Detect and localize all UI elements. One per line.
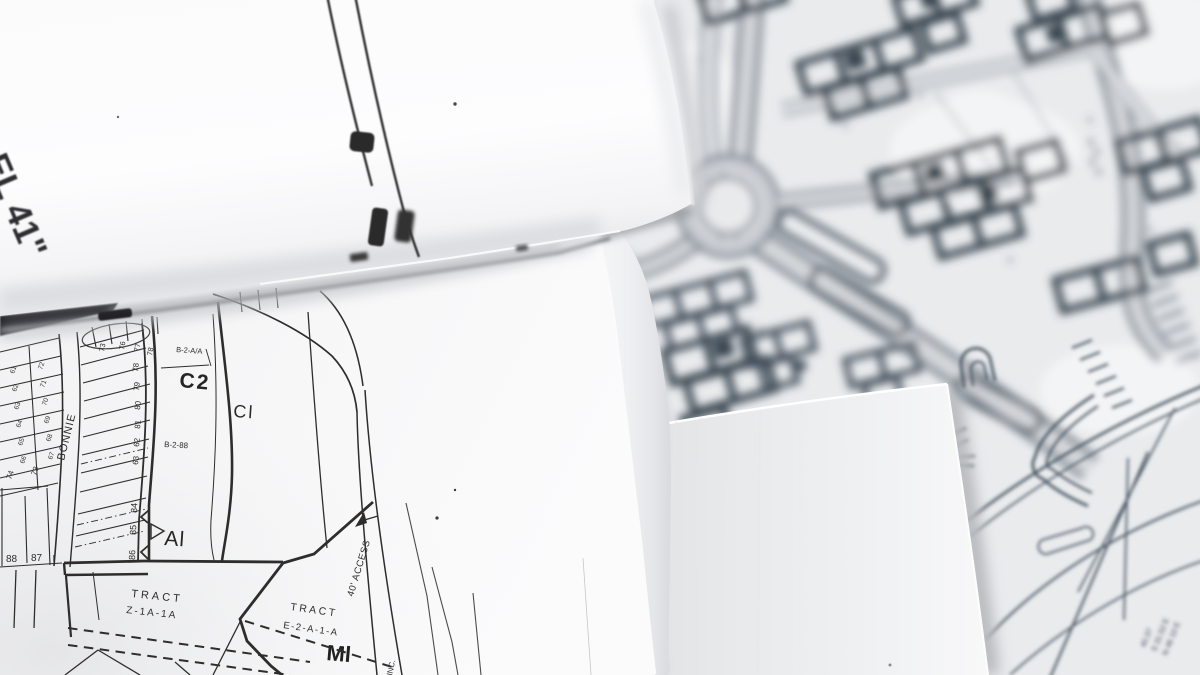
svg-text:63: 63 [131, 455, 141, 465]
svg-text:62: 62 [132, 437, 142, 447]
svg-text:Cl: Cl [233, 401, 255, 422]
svg-text:73: 73 [97, 343, 107, 353]
svg-text:76: 76 [117, 341, 127, 351]
svg-text:78: 78 [131, 362, 141, 372]
svg-text:80: 80 [133, 400, 143, 410]
svg-text:88: 88 [6, 554, 18, 565]
svg-text:B-2-88: B-2-88 [164, 440, 189, 450]
svg-text:85: 85 [128, 525, 138, 535]
svg-text:78: 78 [145, 347, 155, 357]
svg-text:86: 86 [127, 550, 137, 560]
svg-text:77: 77 [132, 343, 142, 353]
svg-text:Al: Al [164, 527, 186, 551]
svg-text:79: 79 [132, 381, 142, 391]
svg-text:87: 87 [31, 553, 43, 564]
svg-text:C2: C2 [179, 369, 212, 395]
svg-text:B-2-A/A: B-2-A/A [176, 345, 203, 356]
svg-text:84: 84 [129, 503, 139, 513]
svg-text:Ml: Ml [326, 640, 353, 667]
svg-text:81: 81 [133, 419, 143, 429]
